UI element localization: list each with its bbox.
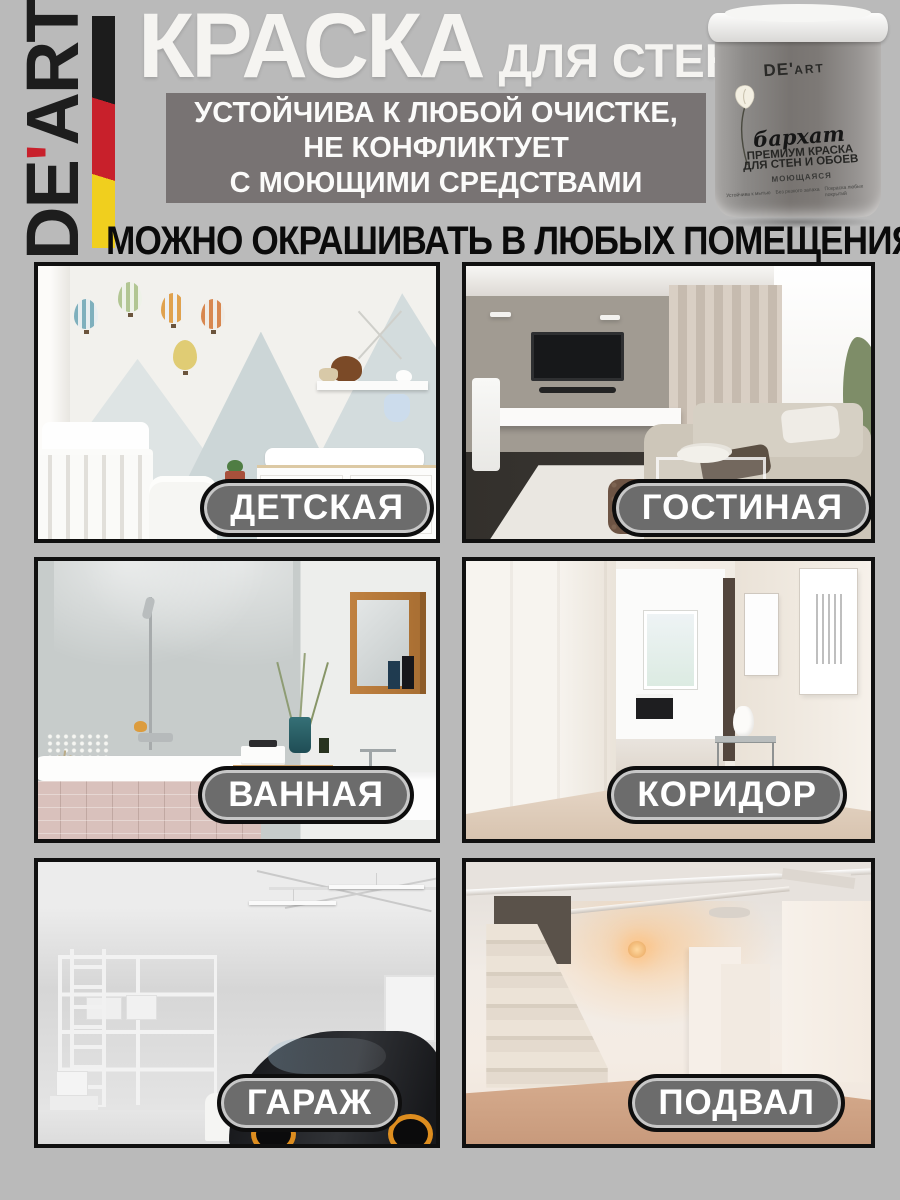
product-title: КРАСКА — [138, 0, 483, 99]
claim-box: УСТОЙЧИВА К ЛЮБОЙ ОЧИСТКЕ, НЕ КОНФЛИКТУЕ… — [166, 93, 706, 203]
vase — [733, 706, 753, 737]
tv — [531, 332, 624, 381]
brand-logo-prefix: DE — [11, 161, 94, 260]
balloon-decor — [118, 282, 142, 312]
brand-logo-apostrophe: ' — [11, 146, 94, 162]
room-photo-corridor: КОРИДОР — [462, 557, 875, 843]
room-label-corridor: КОРИДОР — [607, 766, 847, 824]
paint-can: DE'ART бархат ПРЕМИУМ КРАСКА ДЛЯ СТЕН И … — [702, 4, 894, 226]
balloon-decor — [173, 340, 197, 370]
can-feature-3: Покраска любых покрытий — [824, 182, 879, 198]
room-label-bathroom: ВАННАЯ — [198, 766, 414, 824]
room-photo-basement: ПОДВАЛ — [462, 858, 875, 1148]
header: КРАСКА ДЛЯ СТЕН — [138, 0, 739, 99]
ceiling-light — [329, 885, 425, 889]
can-brand: DE'ART — [698, 52, 891, 85]
can-label: DE'ART бархат ПРЕМИУМ КРАСКА ДЛЯ СТЕН И … — [696, 24, 900, 223]
room-label-garage: ГАРАЖ — [217, 1074, 402, 1132]
wall-frame — [745, 594, 777, 675]
console-table — [715, 736, 776, 742]
can-feature-2: Без резкого запаха — [775, 186, 820, 201]
can-feature-1: Устойчива к мытью — [726, 189, 771, 204]
shower-rail — [149, 597, 152, 750]
far-window — [644, 611, 697, 689]
baby-onesie — [384, 394, 410, 421]
promo-banner: DE'ART КРАСКА ДЛЯ СТЕН УСТОЙЧИВА К ЛЮБОЙ… — [0, 0, 900, 1200]
can-lid-top — [725, 4, 871, 22]
room-photo-nursery: ДЕТСКАЯ — [34, 262, 440, 543]
wall-shelf — [317, 381, 428, 391]
tv-console — [494, 408, 680, 426]
german-flag-stripe-icon — [92, 16, 115, 248]
wall-lamp — [628, 941, 646, 958]
room-photo-bathroom: ВАННАЯ — [34, 557, 440, 843]
balloon-decor — [74, 299, 98, 329]
room-label-basement: ПОДВАЛ — [628, 1074, 845, 1132]
room-photo-garage: ГАРАЖ — [34, 858, 440, 1148]
ceiling-light — [249, 901, 337, 905]
room-label-nursery: ДЕТСКАЯ — [200, 479, 434, 537]
claim-line-2: НЕ КОНФЛИКТУЕТ — [303, 131, 569, 166]
wall-frame — [800, 569, 857, 694]
balloon-decor — [161, 293, 185, 323]
brand-logo: DE'ART — [9, 12, 97, 260]
room-label-living: ГОСТИНАЯ — [612, 479, 873, 537]
claim-line-1: УСТОЙЧИВА К ЛЮБОЙ ОЧИСТКЕ, — [194, 96, 678, 131]
claim-line-3: С МОЮЩИМИ СРЕДСТВАМИ — [230, 166, 643, 201]
room-photo-living: ГОСТИНАЯ — [462, 262, 875, 543]
balloon-decor — [201, 299, 225, 329]
brand-logo-suffix: ART — [11, 0, 94, 146]
crib — [34, 449, 153, 539]
vase — [289, 717, 311, 753]
